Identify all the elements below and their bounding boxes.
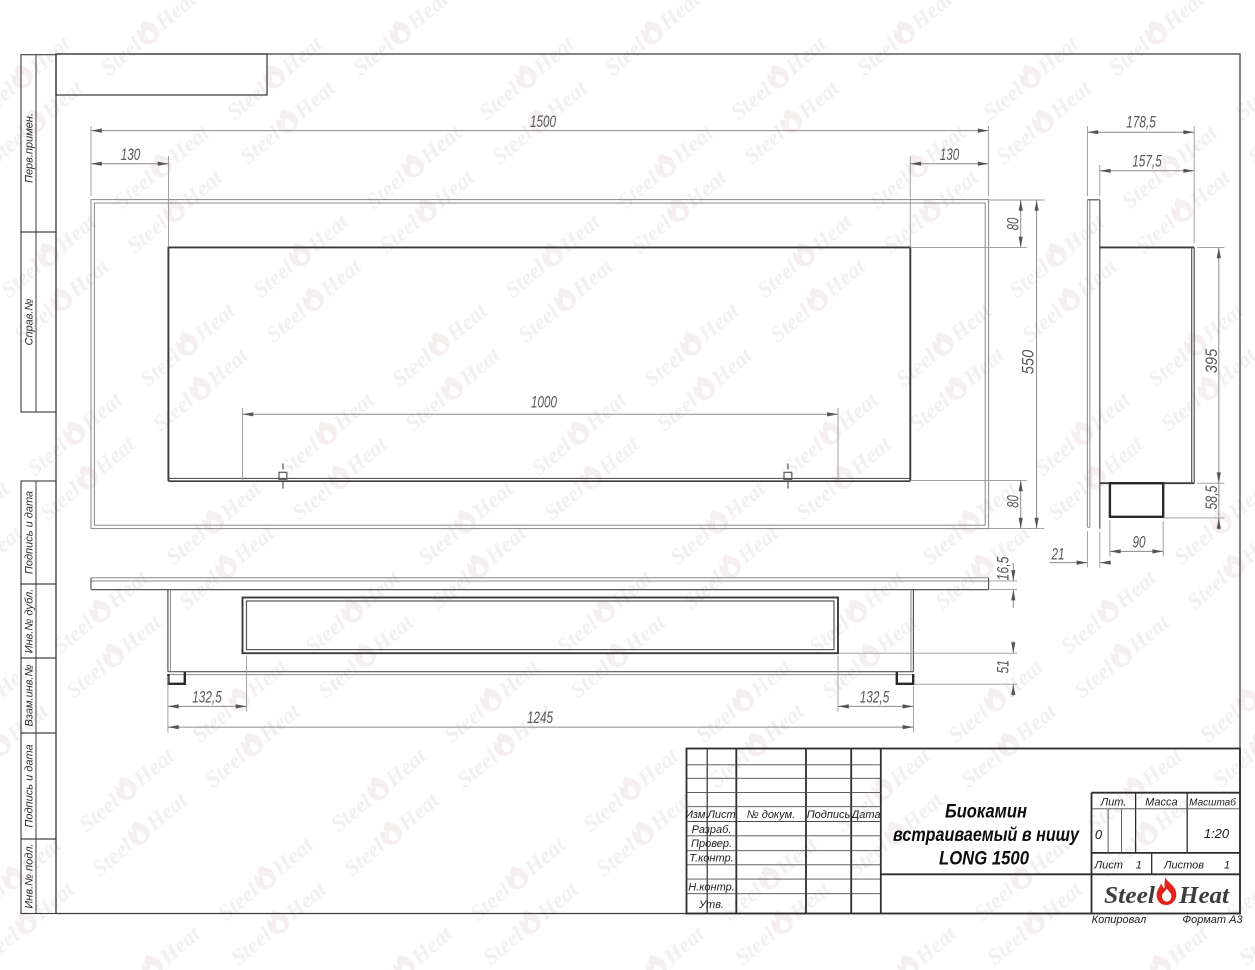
svg-text:0: 0 — [1095, 827, 1103, 842]
svg-text:132,5: 132,5 — [860, 689, 890, 707]
svg-text:130: 130 — [121, 146, 141, 164]
svg-text:Дата: Дата — [849, 809, 880, 821]
svg-text:178,5: 178,5 — [1126, 113, 1156, 131]
svg-text:130: 130 — [940, 146, 960, 164]
svg-text:Steel: Steel — [1104, 882, 1155, 909]
svg-text:Взам.инв.№: Взам.инв.№ — [24, 664, 36, 726]
svg-text:51: 51 — [995, 660, 1013, 674]
svg-text:Справ.№: Справ.№ — [24, 298, 36, 345]
svg-text:Масштаб: Масштаб — [1189, 797, 1236, 809]
svg-text:Т.контр.: Т.контр. — [689, 853, 733, 865]
svg-text:16,5: 16,5 — [995, 556, 1013, 581]
svg-text:132,5: 132,5 — [192, 689, 222, 707]
svg-text:Разраб.: Разраб. — [692, 824, 732, 836]
svg-text:1: 1 — [1136, 860, 1142, 872]
svg-text:1000: 1000 — [531, 394, 558, 412]
svg-text:Н.контр.: Н.контр. — [688, 881, 735, 893]
svg-text:Утв.: Утв. — [698, 899, 724, 911]
svg-text:395: 395 — [1203, 348, 1221, 373]
svg-text:Перв.примен.: Перв.примен. — [24, 113, 36, 183]
svg-text:№ докум.: № докум. — [747, 809, 795, 821]
svg-text:встраиваемый в нишу: встраиваемый в нишу — [893, 825, 1080, 846]
svg-text:Инв.№ дубл.: Инв.№ дубл. — [24, 589, 36, 654]
svg-text:550: 550 — [1020, 349, 1038, 374]
svg-text:Инв.№ подл.: Инв.№ подл. — [24, 843, 36, 908]
svg-text:1: 1 — [1224, 860, 1230, 872]
svg-text:Масса: Масса — [1145, 797, 1178, 809]
svg-text:21: 21 — [1051, 546, 1065, 564]
svg-text:58,5: 58,5 — [1203, 485, 1221, 510]
svg-text:1245: 1245 — [527, 709, 554, 727]
svg-text:80: 80 — [1005, 495, 1023, 508]
svg-text:80: 80 — [1005, 217, 1023, 230]
svg-text:Лист: Лист — [706, 809, 735, 821]
svg-text:Изм.: Изм. — [685, 809, 708, 821]
svg-text:Подпись и дата: Подпись и дата — [24, 744, 36, 827]
svg-text:1500: 1500 — [530, 113, 557, 131]
svg-text:1:20: 1:20 — [1204, 826, 1230, 841]
svg-text:157,5: 157,5 — [1132, 153, 1162, 171]
svg-text:Формат А3: Формат А3 — [1182, 914, 1243, 926]
svg-text:Биокамин: Биокамин — [945, 802, 1027, 823]
svg-text:Лит.: Лит. — [1100, 797, 1127, 809]
svg-text:Heat: Heat — [1178, 882, 1230, 909]
svg-text:90: 90 — [1133, 533, 1147, 551]
svg-text:Лист: Лист — [1094, 860, 1123, 872]
svg-text:Подпись и дата: Подпись и дата — [24, 491, 36, 574]
svg-text:Провер.: Провер. — [691, 838, 732, 850]
svg-text:Подпись: Подпись — [807, 809, 851, 821]
svg-text:Листов: Листов — [1163, 860, 1204, 872]
svg-text:LONG 1500: LONG 1500 — [939, 849, 1029, 870]
svg-text:Копировал: Копировал — [1092, 914, 1147, 926]
